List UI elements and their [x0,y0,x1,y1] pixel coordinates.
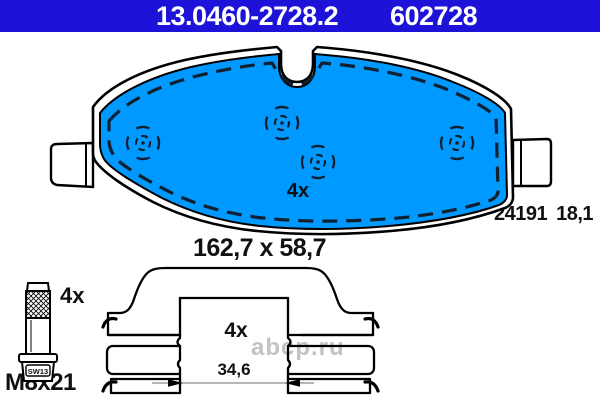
pad-left-tab [51,143,93,187]
part-number: 13.0460-2728.2 [156,1,338,31]
bolt-drawing: SW13 [16,281,60,385]
bolt-wrench-size-label: SW13 [28,367,48,376]
title-bar: 13.0460-2728.2 602728 [0,0,600,32]
product-image: 13.0460-2728.2 602728 abcp.ru [0,0,600,400]
clip-width-label: 34,6 [217,360,250,379]
clip-quantity-label: 4x [224,319,248,342]
brake-pad-drawing: 4x [45,45,565,240]
pad-right-tab [513,139,551,186]
pad-quantity-label: 4x [287,180,309,202]
fitting-kit-drawing: 34,6 4x [103,262,378,400]
bolt-icon: SW13 [19,283,57,381]
secondary-number: 602728 [390,1,477,31]
bolt-quantity-label: 4x [60,283,84,309]
